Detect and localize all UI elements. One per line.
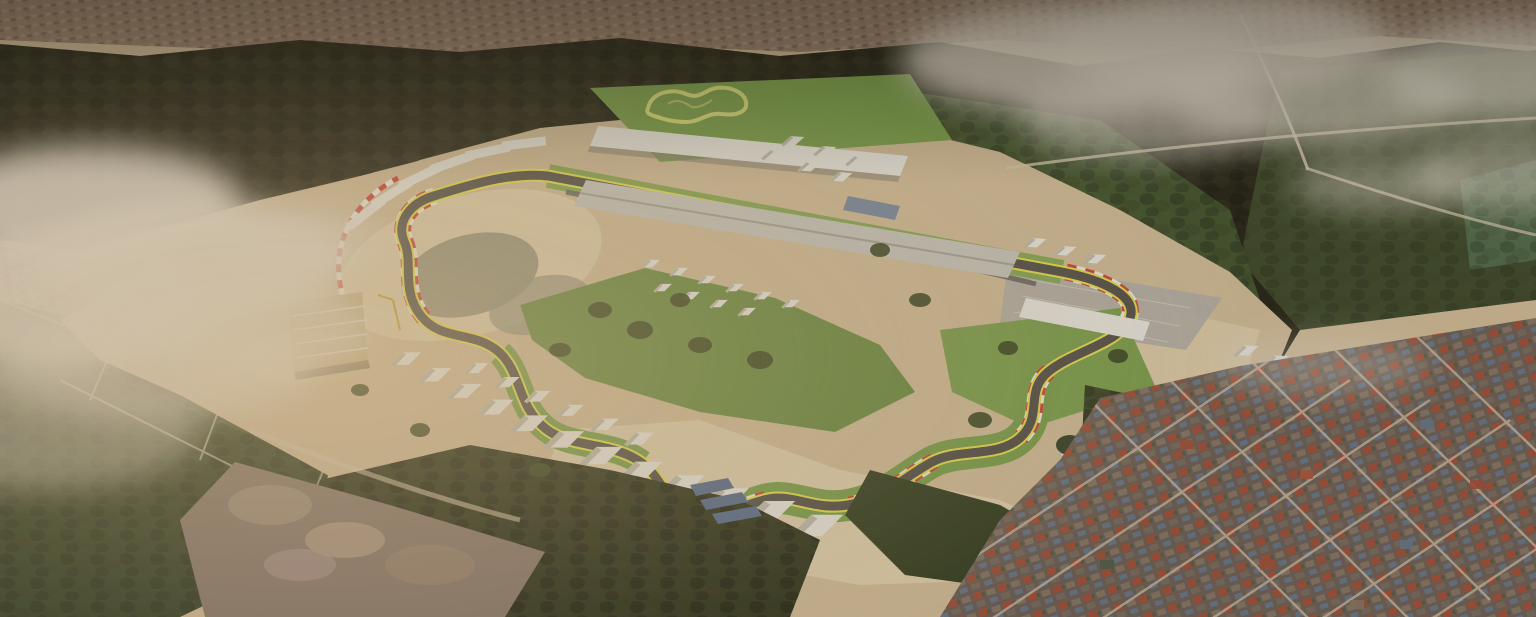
aerial-circuit-render: [0, 0, 1536, 617]
aerial-circuit-scene: [0, 0, 1536, 617]
sunlight-haze: [0, 0, 1536, 617]
